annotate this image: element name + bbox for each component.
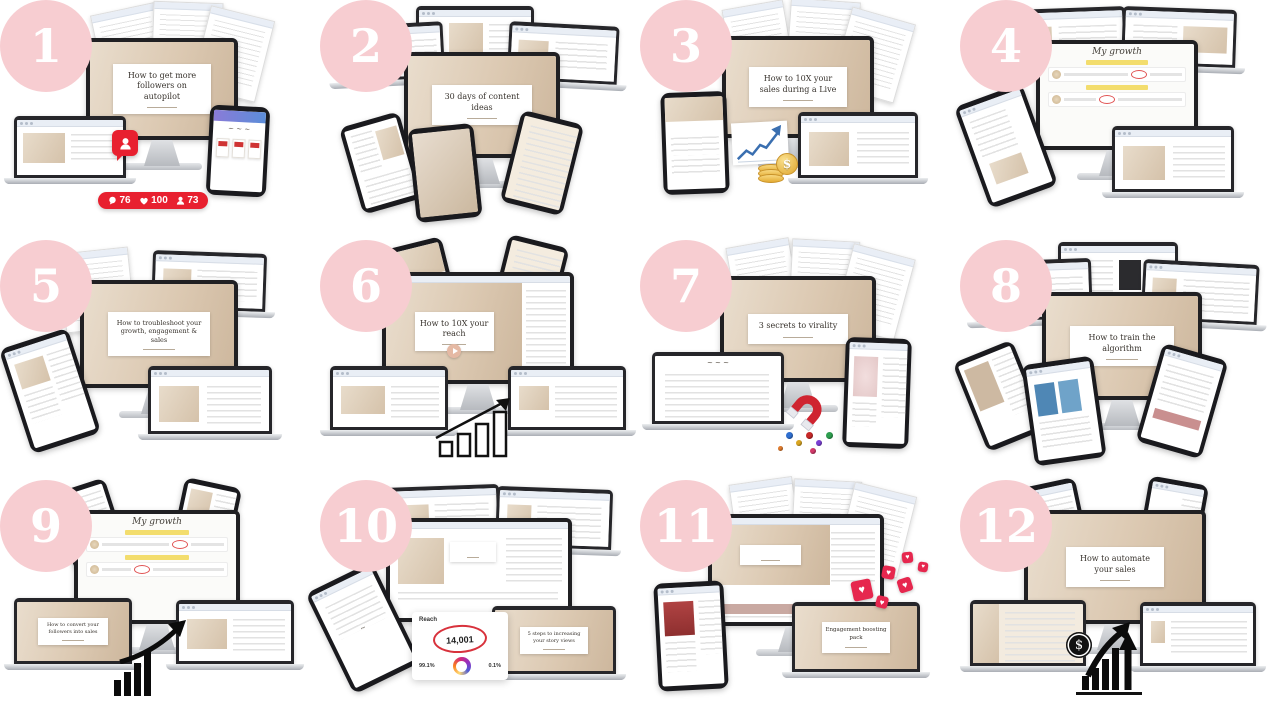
laptop-mockup <box>1112 126 1234 198</box>
module-number: 10 <box>334 499 398 553</box>
gold-coins-icon: $ <box>758 168 784 183</box>
new-follower-badge-icon <box>112 130 138 156</box>
module-number-badge: 11 <box>640 480 732 572</box>
laptop-mockup: Engagement boosting pack <box>792 602 920 678</box>
product-card <box>247 140 261 160</box>
heart-box-icon: ♥ <box>896 576 914 594</box>
module-7-tile: 7 3 secrets to virality ~ ~ ~ <box>640 240 960 480</box>
script-heading: ~ ~ ~ <box>213 124 265 135</box>
highlight-tag <box>125 530 189 535</box>
module-title: How to automate your sales <box>1071 554 1158 575</box>
heart-box-icon: ♥ <box>901 551 913 563</box>
module-1-tile: 1 How to get more followers on autopilot… <box>0 0 320 240</box>
whiteboard-title: My growth <box>1043 47 1191 57</box>
laptop-mockup <box>798 112 918 184</box>
module-8-tile: 8 How to train the algorithm <box>960 240 1280 480</box>
imac-stand <box>144 140 180 166</box>
up-arrow-icon <box>1118 632 1138 695</box>
browser-toolbar <box>17 120 123 127</box>
avatar <box>90 565 99 574</box>
likes-count: 100 <box>151 195 168 206</box>
laptop-slide-title: How to convert your followers into sales <box>41 622 104 635</box>
followers-pct: 99.1% <box>419 663 435 669</box>
laptop-slide-title: Engagement boosting pack <box>825 627 887 641</box>
module-title: How to 10X your reach <box>420 319 489 340</box>
title-card: How to troubleshoot your growth, engagem… <box>108 312 210 356</box>
module-number: 2 <box>350 19 382 73</box>
tablet-mockup <box>653 580 729 692</box>
red-circle-annotation <box>1099 95 1115 104</box>
module-title: How to get more followers on autopilot <box>118 71 206 102</box>
script-heading: ~ ~ ~ <box>655 359 781 367</box>
person-icon <box>119 137 132 150</box>
module-number-badge: 5 <box>0 240 92 332</box>
module-number: 7 <box>670 259 702 313</box>
browser-screen <box>17 120 123 175</box>
title-card: How to automate your sales <box>1066 547 1163 587</box>
laptop-mockup: 5 steps to increasing your story views <box>492 606 616 680</box>
tablet-mockup <box>407 123 482 223</box>
likes-stat: 100 <box>139 195 168 206</box>
reach-value: 14,001 <box>446 634 474 645</box>
module-10-tile: 10 ~ Reach 14,001 99.1% 0.1% 5 steps to … <box>320 480 640 720</box>
avatar <box>1052 70 1061 79</box>
module-number: 8 <box>990 259 1022 313</box>
title-card: 3 secrets to virality <box>748 314 849 343</box>
module-12-tile: 12 How to automate your sales $ <box>960 480 1280 720</box>
module-number: 1 <box>30 19 62 73</box>
follows-stat: 73 <box>176 195 199 206</box>
modules-grid: 1 How to get more followers on autopilot… <box>0 0 1280 720</box>
comment-bubble-icon <box>108 196 117 205</box>
heart-box-icon: ♥ <box>917 561 928 572</box>
module-5-tile: 5 How to troubleshoot your growth, engag… <box>0 240 320 480</box>
heart-box-icon: ♥ <box>881 565 896 580</box>
module-number: 4 <box>990 19 1022 73</box>
module-title: How to 10X your sales during a Live <box>754 74 842 95</box>
follows-count: 73 <box>187 195 198 206</box>
person-icon <box>176 196 185 205</box>
module-number-badge: 2 <box>320 0 412 92</box>
module-number-badge: 9 <box>0 480 92 572</box>
content-card <box>450 542 496 562</box>
social-stats-pill: 76 100 73 <box>98 192 208 209</box>
whiteboard-row <box>1048 67 1186 82</box>
module-number-badge: 12 <box>960 480 1052 572</box>
whiteboard-row <box>1048 92 1186 107</box>
heart-box-icon: ♥ <box>850 578 874 602</box>
module-4-tile: 4 My growth <box>960 0 1280 240</box>
module-number-badge: 10 <box>320 480 412 572</box>
module-number-badge: 3 <box>640 0 732 92</box>
laptop-mockup: ~ ~ ~ <box>652 352 784 430</box>
title-card: How to 10X your sales during a Live <box>749 67 847 107</box>
laptop-mockup <box>148 366 272 440</box>
avatar <box>1052 95 1061 104</box>
title-card: 30 days of content ideas <box>432 85 533 125</box>
laptop-mockup <box>14 116 126 184</box>
title-card: How to get more followers on autopilot <box>113 64 211 114</box>
tablet-mockup <box>1021 355 1106 466</box>
module-6-tile: 6 How to 10X your reach <box>320 240 640 480</box>
avatar <box>90 540 99 549</box>
module-title: 3 secrets to virality <box>753 321 844 331</box>
module-title: How to troubleshoot your growth, engagem… <box>113 319 205 344</box>
comments-stat: 76 <box>108 195 131 206</box>
red-circle-annotation <box>134 565 150 574</box>
heart-icon <box>139 196 149 205</box>
comments-count: 76 <box>120 195 131 206</box>
whiteboard-row <box>86 562 228 577</box>
module-number: 11 <box>654 499 718 553</box>
growth-arrow-icon <box>118 620 188 669</box>
red-circle-annotation <box>172 540 188 549</box>
laptop-slide-title: 5 steps to increasing your story views <box>523 631 585 644</box>
product-card <box>215 138 229 158</box>
laptop-mockup <box>176 600 294 670</box>
whiteboard-title: My growth <box>81 517 233 527</box>
module-number-badge: 6 <box>320 240 412 332</box>
bar-chart-growth-icon <box>432 398 520 465</box>
laptop-mockup <box>1140 602 1256 672</box>
module-number: 6 <box>350 259 382 313</box>
module-number: 12 <box>974 499 1038 553</box>
module-title: How to train the algorithm <box>1075 333 1168 354</box>
dollar-coin-icon: $ <box>776 153 798 175</box>
module-9-tile: 9 My growth How to convert your follower… <box>0 480 320 720</box>
red-circle-annotation <box>1131 70 1147 79</box>
nonfollowers-pct: 0.1% <box>488 663 501 669</box>
laptop-deck <box>4 178 136 184</box>
module-number-badge: 7 <box>640 240 732 332</box>
module-2-tile: 2 30 days of content ideas <box>320 0 640 240</box>
reach-analytics-card: Reach 14,001 99.1% 0.1% <box>412 612 508 680</box>
laptop-mockup <box>330 366 448 436</box>
module-number: 3 <box>670 19 702 73</box>
product-card <box>231 139 245 159</box>
module-number-badge: 4 <box>960 0 1052 92</box>
play-button-icon <box>447 344 461 358</box>
module-3-tile: 3 How to 10X your sales during a Live Fr… <box>640 0 960 240</box>
module-number-badge: 1 <box>0 0 92 92</box>
tablet-mockup: ~ ~ ~ <box>206 104 271 197</box>
whiteboard-row <box>86 537 228 552</box>
tablet-mockup <box>842 337 912 449</box>
module-11-tile: 11 Engagement boosting pack ♥ ♥ ♥ ♥ ♥ ♥ <box>640 480 960 720</box>
instagram-ring-icon <box>453 657 471 675</box>
module-number-badge: 8 <box>960 240 1052 332</box>
red-circle-annotation: 14,001 <box>433 624 488 655</box>
video-title-card: How to 10X your reach <box>415 312 494 352</box>
highlight-tag <box>1086 60 1148 65</box>
module-number: 5 <box>30 259 62 313</box>
tablet-mockup: Frameworks <box>660 91 730 195</box>
module-title: 30 days of content ideas <box>437 92 528 113</box>
module-number: 9 <box>30 499 62 553</box>
tablet-header <box>214 110 267 124</box>
laptop-mockup <box>508 366 626 436</box>
